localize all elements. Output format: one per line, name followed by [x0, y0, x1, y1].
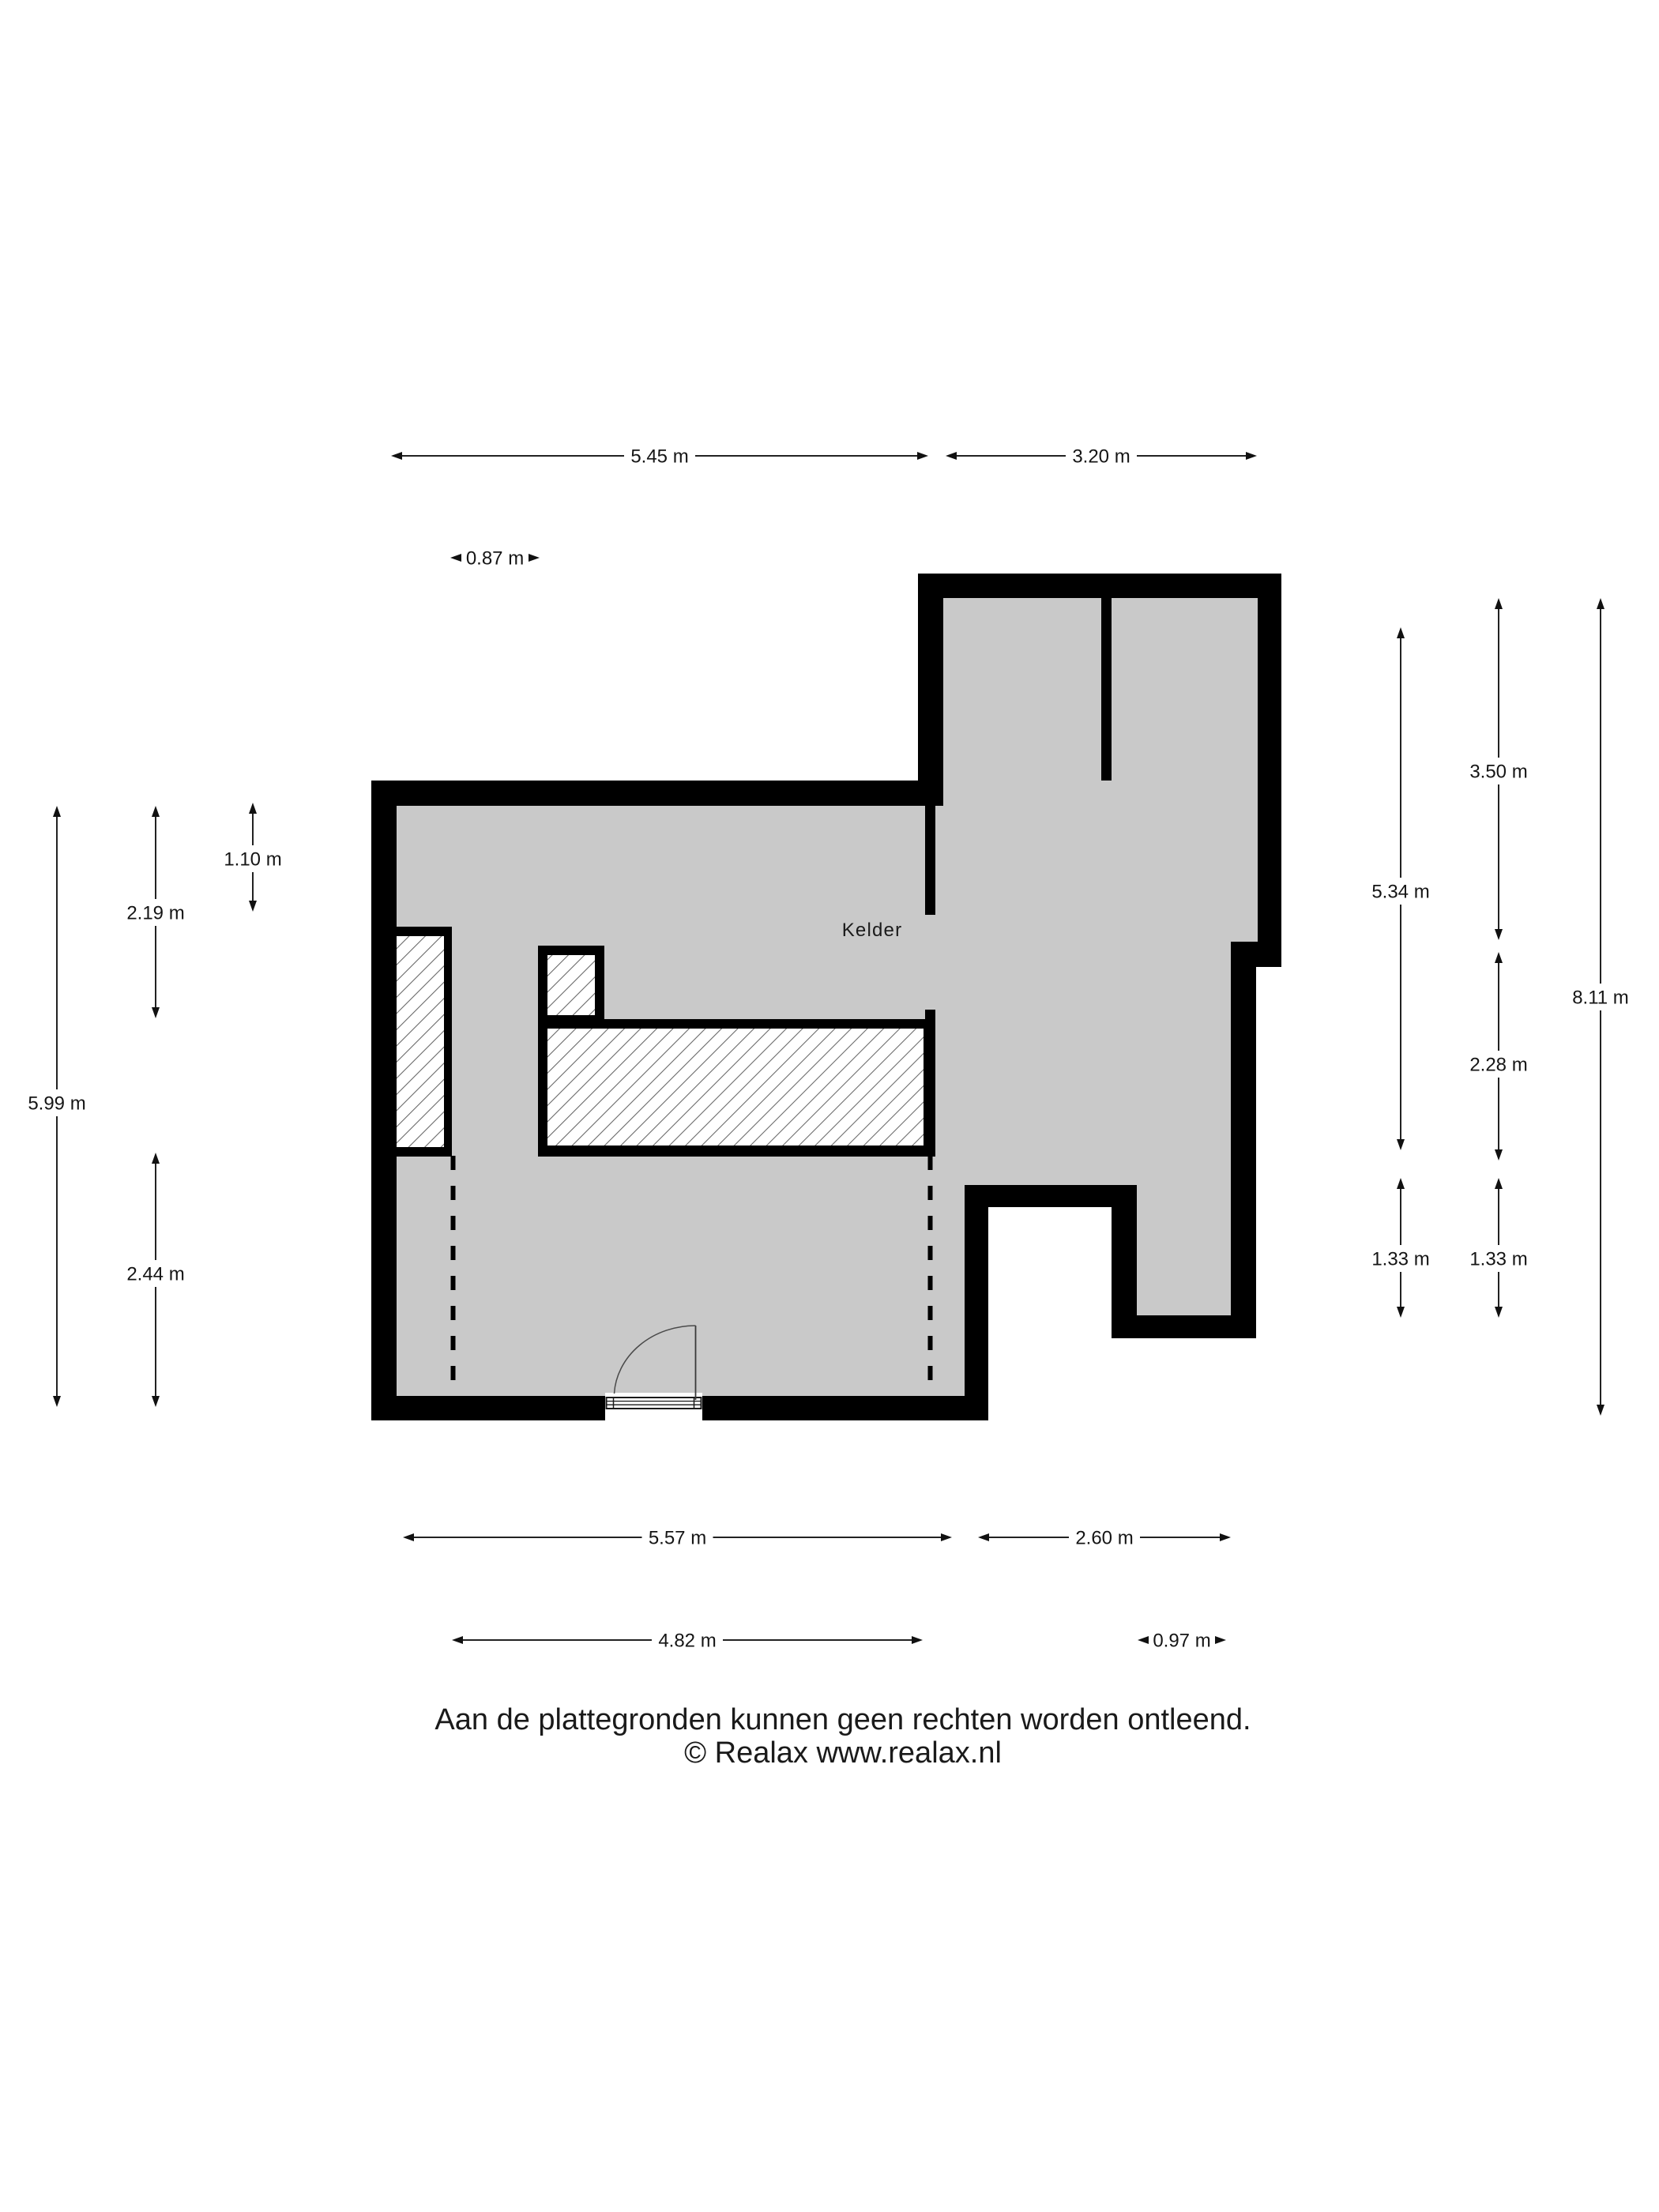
svg-text:2.28 m: 2.28 m [1469, 1055, 1527, 1076]
svg-text:© Realax www.realax.nl: © Realax www.realax.nl [684, 1736, 1002, 1770]
svg-text:Kelder: Kelder [842, 920, 903, 941]
svg-text:0.87 m: 0.87 m [466, 548, 524, 570]
svg-text:4.82 m: 4.82 m [658, 1631, 716, 1652]
svg-text:2.44 m: 2.44 m [126, 1264, 184, 1285]
svg-text:5.45 m: 5.45 m [630, 446, 688, 468]
svg-text:5.34 m: 5.34 m [1371, 882, 1429, 903]
svg-text:1.10 m: 1.10 m [224, 849, 281, 871]
svg-text:0.97 m: 0.97 m [1153, 1631, 1210, 1652]
svg-text:1.33 m: 1.33 m [1371, 1249, 1429, 1270]
svg-text:3.50 m: 3.50 m [1469, 762, 1527, 783]
svg-text:5.57 m: 5.57 m [649, 1528, 706, 1549]
svg-text:2.19 m: 2.19 m [126, 903, 184, 924]
svg-text:2.60 m: 2.60 m [1075, 1528, 1133, 1549]
svg-text:5.99 m: 5.99 m [28, 1093, 85, 1115]
svg-text:8.11 m: 8.11 m [1572, 987, 1629, 1009]
svg-text:Aan de plattegronden kunnen ge: Aan de plattegronden kunnen geen rechten… [434, 1703, 1251, 1736]
svg-text:3.20 m: 3.20 m [1072, 446, 1130, 468]
svg-text:1.33 m: 1.33 m [1469, 1249, 1527, 1270]
